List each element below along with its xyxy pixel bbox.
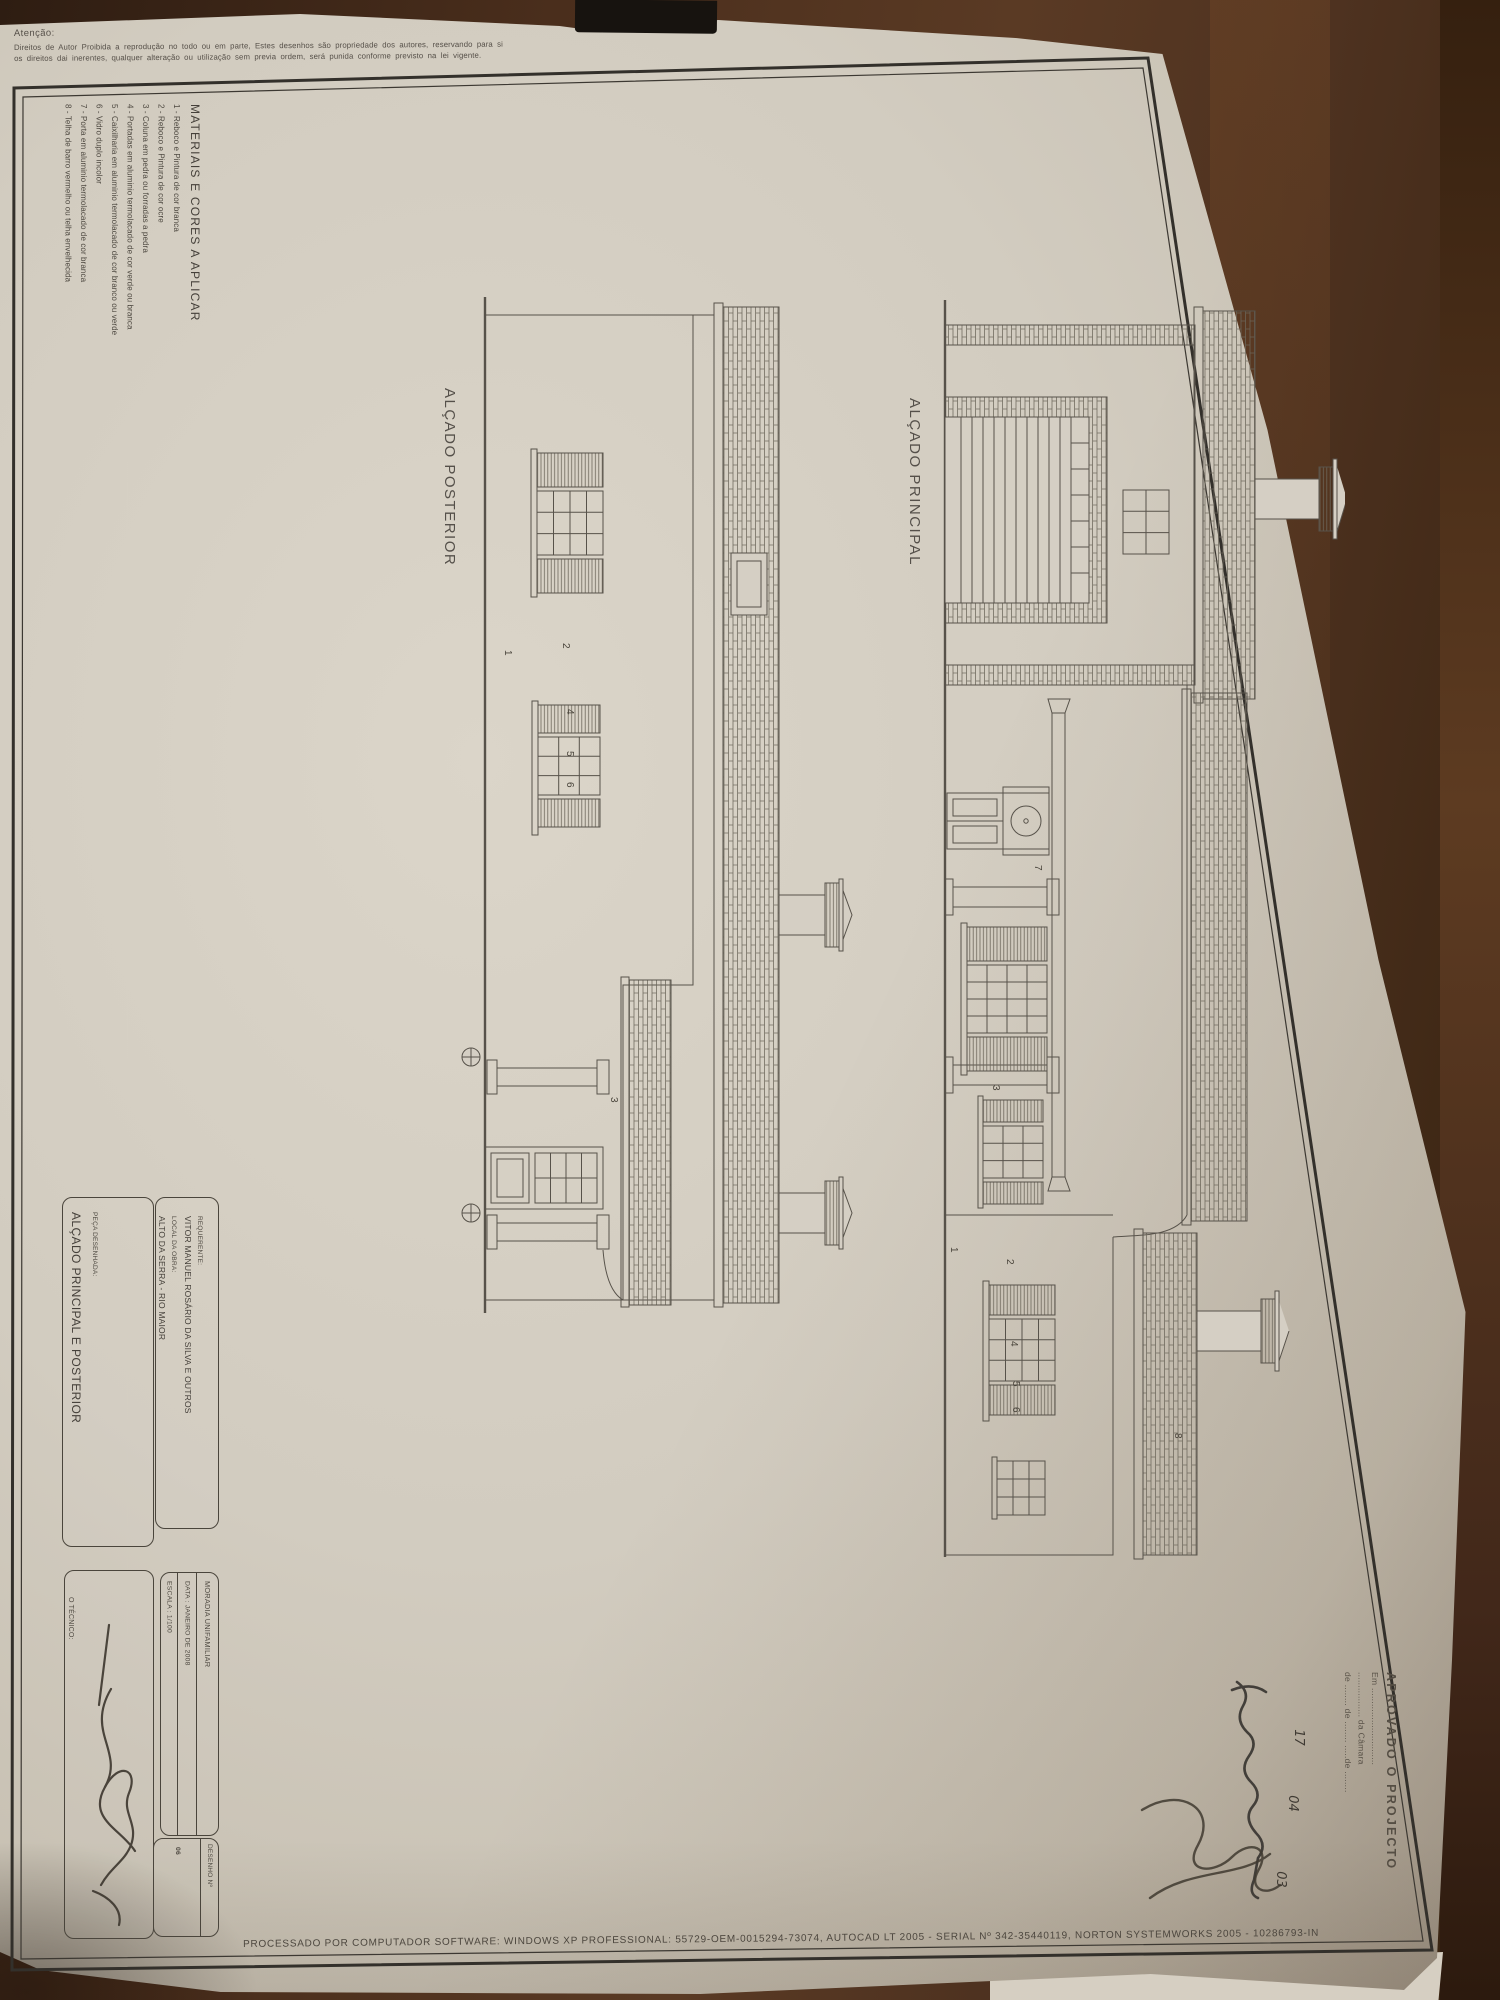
titleblock-project-box: MORADIA UNIFAMILIAR DATA : JANEIRO DE 20…: [160, 1572, 219, 1836]
material-ref-number: 6: [564, 782, 575, 788]
technician-signature: [65, 1571, 153, 1938]
materials-legend-item: 7 - Porta em aluminio termolacado de cor…: [76, 104, 92, 584]
material-ref-number: 2: [1004, 1259, 1015, 1265]
materials-legend-item: 5 - Caixilharia em aluminio termolacado …: [107, 104, 123, 584]
material-ref-number: 1: [502, 650, 513, 656]
material-ref-number: 6: [1010, 1407, 1021, 1413]
materials-legend-item: 6 - Vidro duplo incolor: [91, 104, 107, 584]
copyright-notice: Atenção: Direitos de Autor Proibida a re…: [14, 24, 594, 64]
materials-legend-item: 4 - Portadas em aluminio termolacado de …: [122, 104, 138, 584]
escala-value: ESCALA : 1/100: [166, 1573, 173, 1633]
local-da-obra-label: LOCAL DA OBRA:: [168, 1216, 178, 1414]
material-ref-number: 7: [1032, 865, 1043, 871]
photo-of-architectural-drawing: Atenção: Direitos de Autor Proibida a re…: [0, 0, 1500, 2000]
material-ref-number: 5: [1010, 1381, 1021, 1387]
peca-desenhada-label: PEÇA DESENHADA:: [89, 1212, 99, 1423]
desenho-number-label: DESENHO Nº: [206, 1839, 213, 1887]
materials-legend-item: 1 - Reboco e Pintura de cor branca: [169, 104, 185, 584]
materials-legend-heading: MATERIAIS E CORES A APLICAR: [184, 104, 206, 584]
titleblock-requerente-box: REQUERENTE: VITOR MANUEL ROSÁRIO DA SILV…: [155, 1197, 219, 1529]
posterior-elevation-linework: [455, 285, 855, 1325]
posterior-elevation-drawing: 1 2 4 5 6 3: [455, 285, 855, 1325]
material-ref-number: 8: [1172, 1433, 1183, 1439]
peca-desenhada-value: ALÇADO PRINCIPAL E POSTERIOR: [63, 1212, 89, 1423]
local-da-obra-value: ALTO DA SERRA - RIO MAIOR: [156, 1216, 168, 1414]
materials-legend: MATERIAIS E CORES A APLICAR 1 - Reboco e…: [28, 104, 206, 584]
titleblock-peca-box: PEÇA DESENHADA: ALÇADO PRINCIPAL E POSTE…: [62, 1197, 154, 1547]
principal-elevation-drawing: 7 3 1 2 4 5 6 8: [900, 285, 1345, 1570]
moradia-value: MORADIA UNIFAMILIAR: [203, 1573, 212, 1667]
materials-legend-item: 2 - Reboco e Pintura de cor ocre: [153, 104, 169, 584]
material-ref-number: 4: [1008, 1341, 1019, 1347]
materials-legend-item: 8 - Telha de barro vermelho ou telha env…: [60, 104, 76, 584]
approval-signature: [1120, 1660, 1430, 1990]
material-ref-number: 3: [608, 1097, 619, 1103]
material-ref-number: 2: [560, 643, 571, 649]
material-ref-number: 4: [564, 709, 575, 715]
desenho-number-value: 06: [174, 1839, 181, 1855]
titleblock-tecnico-box: O TÉCNICO:: [64, 1570, 154, 1939]
titleblock-desenho-box: DESENHO Nº 06: [153, 1838, 219, 1937]
materials-legend-item: 3 - Coluna em pedra ou forradas a pedra: [138, 104, 154, 584]
principal-elevation-linework: [900, 285, 1345, 1570]
requerente-label: REQUERENTE:: [194, 1216, 204, 1414]
requerente-value: VITOR MANUEL ROSÁRIO DA SILVA E OUTROS: [182, 1216, 194, 1414]
material-ref-number: 3: [990, 1085, 1001, 1091]
material-ref-number: 5: [564, 751, 575, 757]
data-value: DATA : JANEIRO DE 2008: [184, 1573, 191, 1666]
material-ref-number: 1: [948, 1247, 959, 1253]
